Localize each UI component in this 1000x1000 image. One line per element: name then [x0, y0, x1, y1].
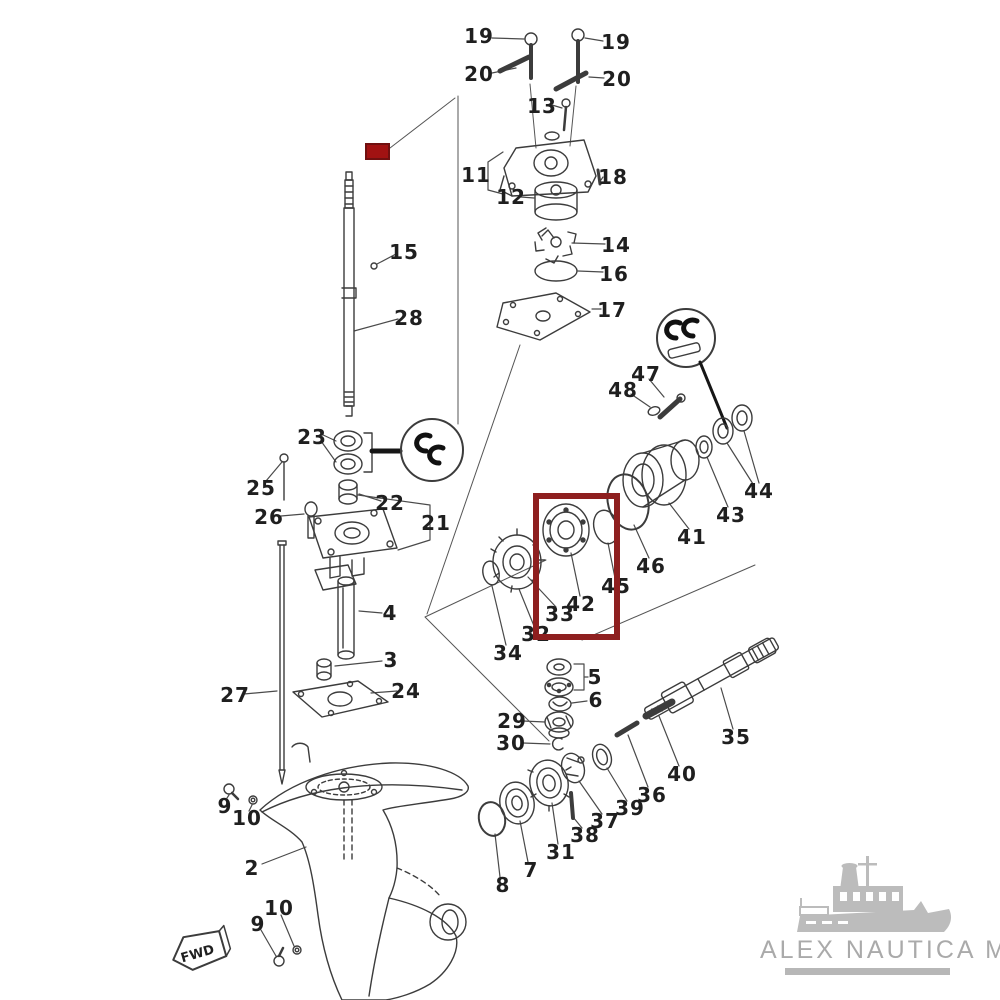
cap-6: [549, 697, 571, 711]
bolt-13: [562, 99, 570, 130]
washer-10-upper: [249, 796, 257, 804]
spacer-3: [317, 659, 331, 680]
washer-5a: [547, 659, 571, 675]
bearing-5b: [545, 678, 573, 696]
washer-39: [589, 742, 614, 772]
axis-lines: [390, 84, 755, 741]
bushing-group-23: [334, 431, 372, 474]
gasket-17: [497, 293, 590, 340]
oring-8: [476, 800, 509, 839]
clip-30: [553, 738, 563, 750]
shift-rod-27: [278, 541, 286, 784]
bolt-9-lower: [274, 948, 284, 966]
parts-diagram-page: FWD: [0, 0, 1000, 1000]
impeller-14: [535, 228, 576, 263]
pin-25: [280, 454, 288, 500]
watermark-underline-bar: [785, 968, 950, 975]
pump-cup-12: [535, 182, 577, 220]
mount-housing-21: [309, 509, 397, 590]
drive-shaft-28: [342, 172, 356, 416]
pin-36: [617, 723, 637, 735]
washer-10-lower: [293, 946, 301, 954]
pump-housing-11: [500, 132, 596, 196]
seal-detail-circle-left: [372, 419, 463, 481]
watermark: ALEX NAUTICA MT: [700, 850, 1000, 990]
dowel-pin-20-right: [556, 73, 586, 89]
pinion-nut-29: [545, 712, 573, 738]
red-marker-highlight: [365, 143, 390, 160]
clip-15: [371, 263, 377, 269]
part-22: [339, 480, 357, 504]
gasket-24: [293, 681, 388, 717]
red-focus-box-part-42: [533, 493, 620, 640]
bolt-9-upper: [224, 784, 238, 799]
oring-16: [535, 261, 577, 281]
gear-case-2: [260, 743, 468, 1000]
bearing-7: [496, 779, 538, 827]
reverse-gear-31: [526, 757, 573, 811]
pin-38: [571, 793, 573, 818]
bearing-carrier-41: [623, 440, 699, 507]
fwd-direction-tag: FWD: [168, 926, 233, 975]
watermark-brand-text: ALEX NAUTICA MT: [760, 936, 1000, 965]
pin-18: [598, 170, 600, 184]
sleeve-tube-4: [338, 577, 354, 659]
